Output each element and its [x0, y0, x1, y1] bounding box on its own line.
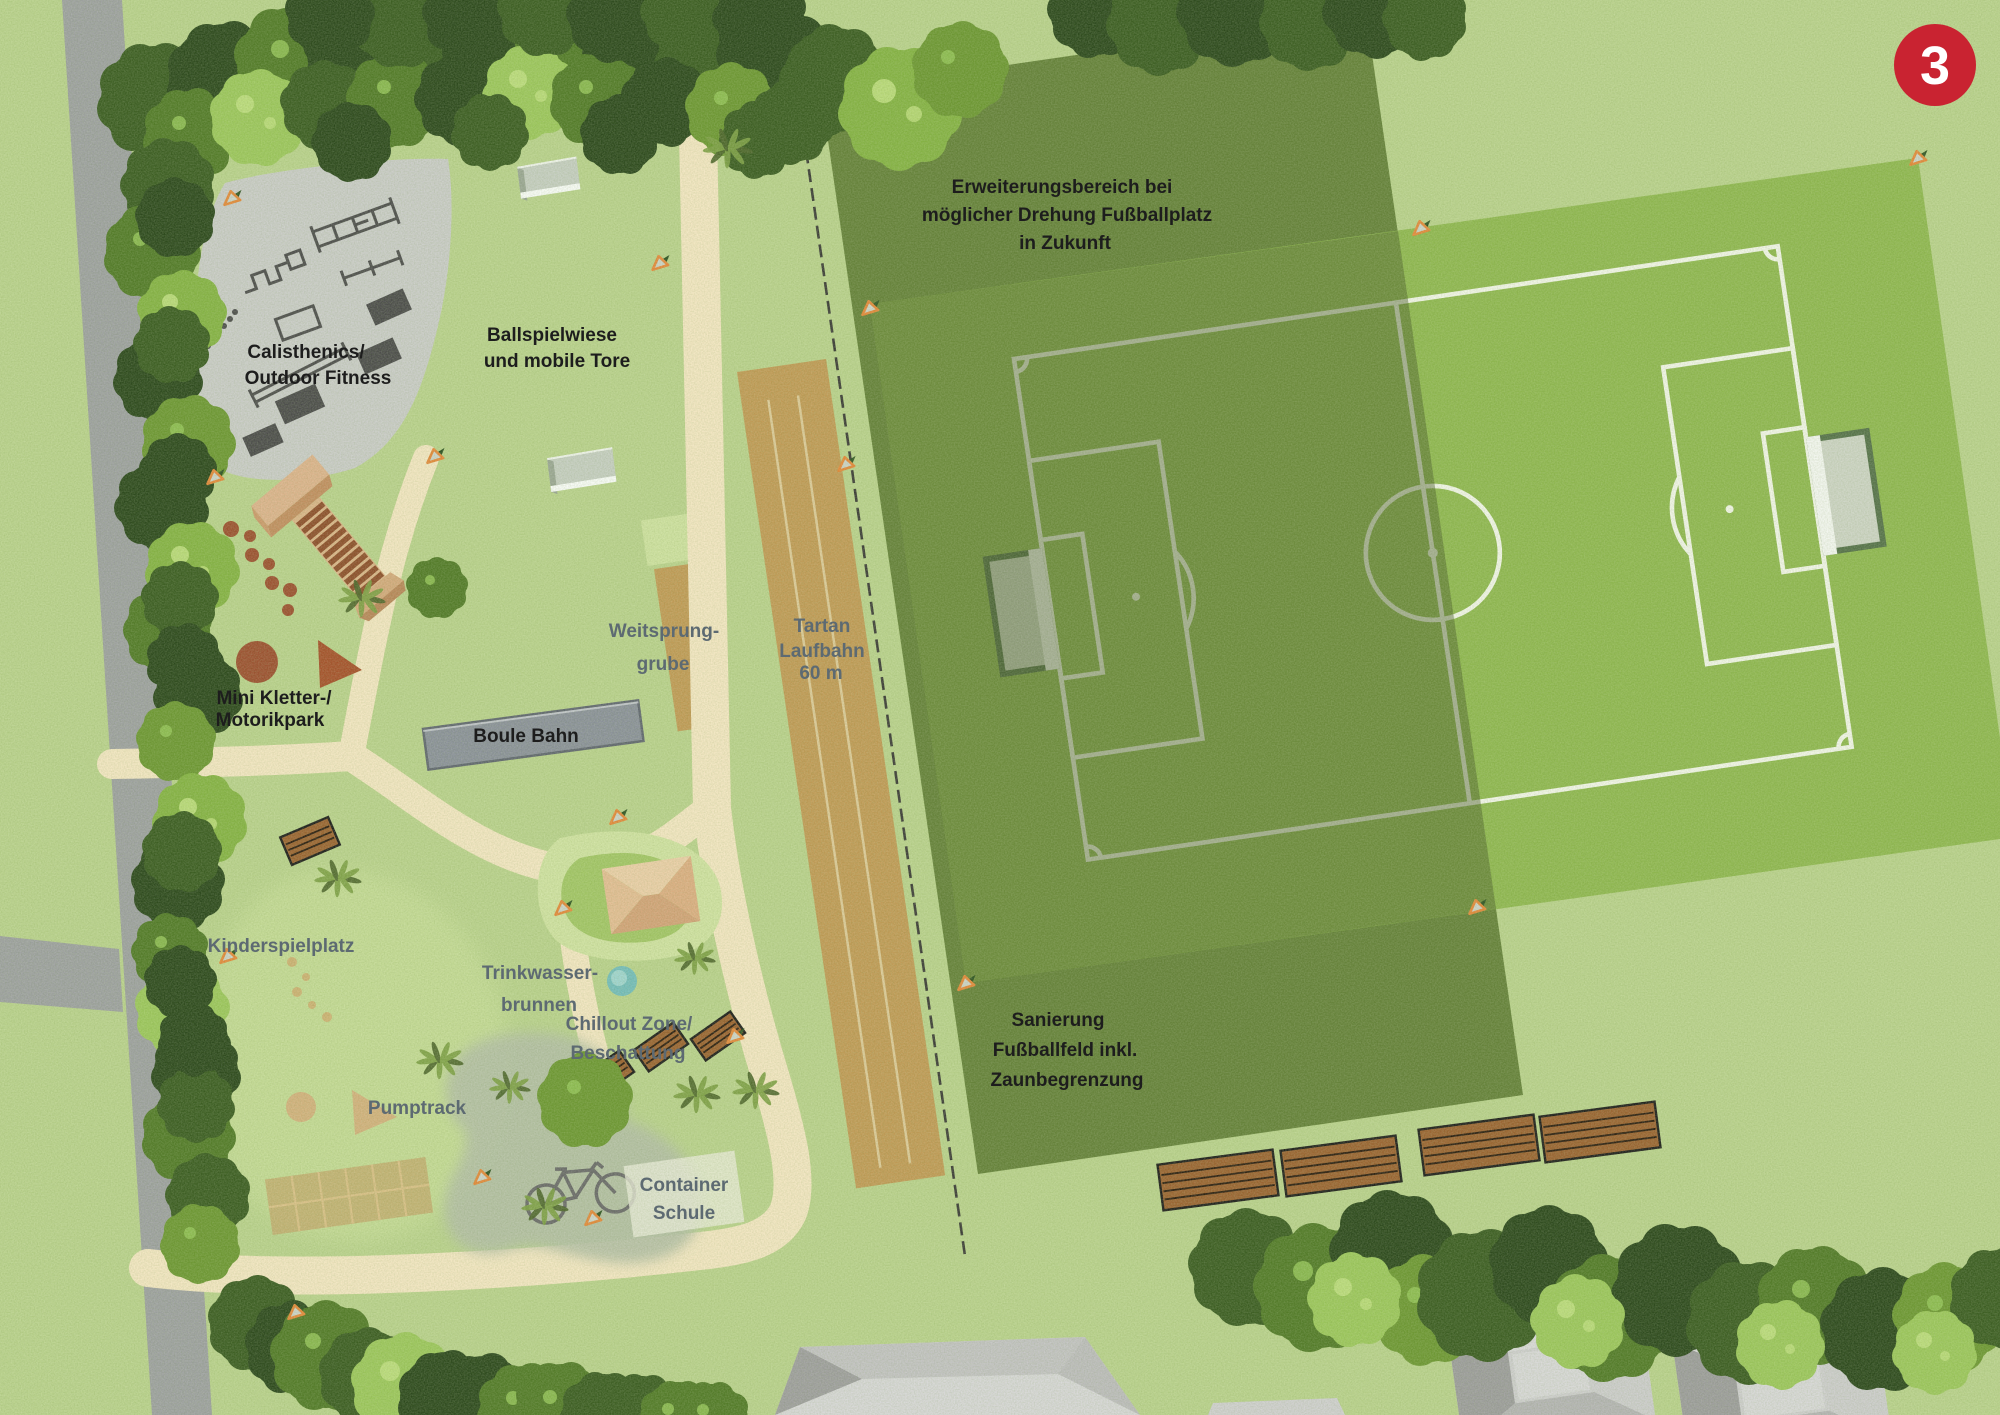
svg-text:grube: grube [637, 654, 690, 675]
svg-text:Schule: Schule [653, 1203, 715, 1224]
svg-text:Motorikpark: Motorikpark [216, 710, 325, 731]
svg-text:möglicher Drehung Fußballplatz: möglicher Drehung Fußballplatz [922, 205, 1212, 226]
svg-text:Laufbahn: Laufbahn [779, 641, 865, 662]
svg-text:Sanierung: Sanierung [1012, 1010, 1105, 1031]
svg-text:Calisthenics/: Calisthenics/ [247, 342, 365, 363]
svg-text:brunnen: brunnen [501, 995, 577, 1016]
svg-text:Tartan: Tartan [794, 616, 851, 637]
svg-text:Ballspielwiese: Ballspielwiese [487, 325, 617, 346]
svg-text:Beschattung: Beschattung [570, 1043, 685, 1064]
svg-text:Kinderspielplatz: Kinderspielplatz [208, 936, 355, 957]
svg-text:in Zukunft: in Zukunft [1019, 233, 1111, 254]
svg-text:Pumptrack: Pumptrack [368, 1098, 467, 1119]
svg-text:Mini Kletter-/: Mini Kletter-/ [216, 688, 332, 709]
svg-text:60 m: 60 m [799, 663, 842, 684]
svg-text:Boule Bahn: Boule Bahn [473, 726, 579, 747]
svg-text:3: 3 [1920, 36, 1950, 96]
svg-text:und mobile Tore: und mobile Tore [484, 351, 630, 372]
svg-text:Fußballfeld inkl.: Fußballfeld inkl. [993, 1040, 1138, 1061]
svg-text:Zaunbegrenzung: Zaunbegrenzung [990, 1070, 1143, 1091]
svg-text:Outdoor Fitness: Outdoor Fitness [245, 368, 392, 389]
svg-text:Weitsprung-: Weitsprung- [609, 621, 719, 642]
svg-text:Container: Container [640, 1175, 729, 1196]
svg-text:Chillout Zone/: Chillout Zone/ [566, 1014, 693, 1035]
svg-text:Trinkwasser-: Trinkwasser- [482, 963, 598, 984]
svg-text:Erweiterungsbereich bei: Erweiterungsbereich bei [952, 177, 1173, 198]
